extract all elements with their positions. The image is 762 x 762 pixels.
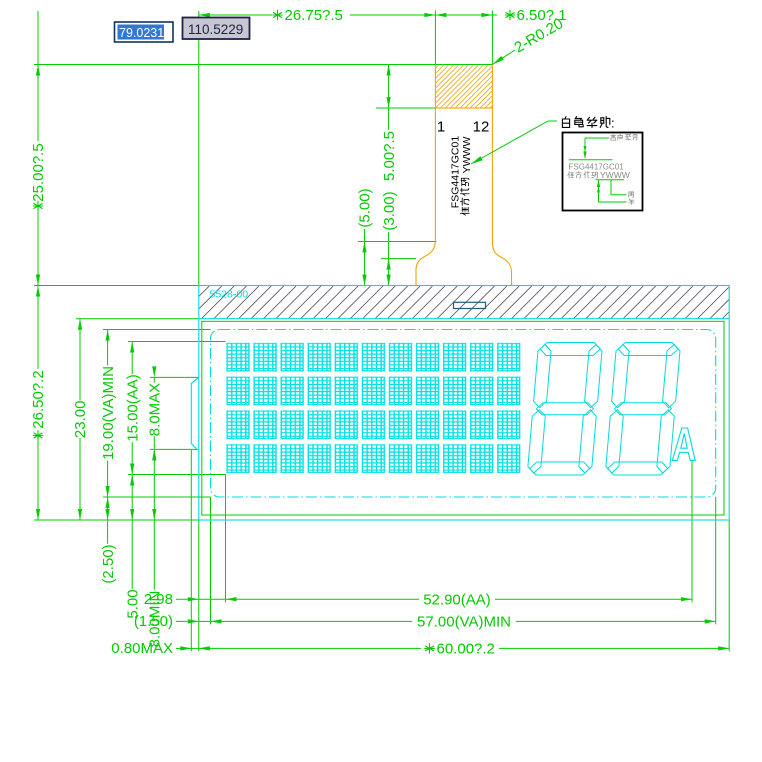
svg-text:52.90(AA): 52.90(AA) bbox=[423, 592, 491, 609]
svg-text:25.00?.5: 25.00?.5 bbox=[30, 143, 47, 201]
svg-text:5528-00: 5528-00 bbox=[210, 288, 249, 300]
svg-text:15.00(AA): 15.00(AA) bbox=[124, 374, 141, 442]
svg-text:0.80MAX: 0.80MAX bbox=[111, 640, 173, 657]
svg-text:23.00: 23.00 bbox=[72, 401, 89, 439]
svg-text:110.5229: 110.5229 bbox=[188, 22, 243, 37]
svg-text:26.75?.5: 26.75?.5 bbox=[285, 7, 343, 24]
svg-text:YWWW: YWWW bbox=[600, 170, 630, 180]
svg-text:2.98: 2.98 bbox=[144, 591, 173, 608]
svg-text::: : bbox=[611, 116, 615, 131]
svg-text:26.50?.2: 26.50?.2 bbox=[30, 370, 47, 428]
svg-text:(2.50): (2.50) bbox=[100, 544, 117, 583]
svg-text:(1.50): (1.50) bbox=[134, 613, 173, 630]
svg-text:60.00?.2: 60.00?.2 bbox=[437, 641, 495, 658]
svg-text:1: 1 bbox=[437, 119, 445, 136]
svg-text:(5.00): (5.00) bbox=[357, 188, 374, 227]
svg-text:8.0MAX: 8.0MAX bbox=[147, 383, 164, 436]
svg-text:FSG4417GC01: FSG4417GC01 bbox=[450, 136, 462, 209]
svg-text:5.00?.5: 5.00?.5 bbox=[381, 131, 398, 181]
svg-text:19.00(VA)MIN: 19.00(VA)MIN bbox=[100, 366, 117, 460]
svg-text:YWWW: YWWW bbox=[461, 137, 473, 174]
svg-text:(3.00): (3.00) bbox=[381, 191, 398, 230]
svg-text:57.00(VA)MIN: 57.00(VA)MIN bbox=[417, 614, 511, 631]
svg-text:12: 12 bbox=[473, 119, 490, 136]
svg-text:79.0231: 79.0231 bbox=[119, 26, 164, 40]
